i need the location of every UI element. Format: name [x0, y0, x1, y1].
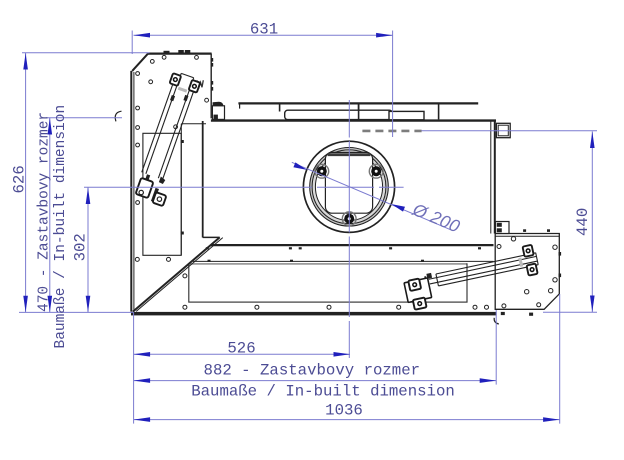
svg-text:Baumaße / In-built dimension: Baumaße / In-built dimension: [53, 105, 69, 349]
svg-text:Baumaße / In-built dimension: Baumaße / In-built dimension: [191, 383, 455, 401]
svg-text:626: 626: [11, 165, 29, 193]
svg-text:302: 302: [72, 233, 90, 261]
svg-text:631: 631: [250, 21, 278, 39]
svg-text:1036: 1036: [325, 402, 363, 420]
svg-text:882 - Zastavbovy rozmer: 882 - Zastavbovy rozmer: [204, 362, 421, 380]
svg-text:470 - Zastavbovy rozmer: 470 - Zastavbovy rozmer: [37, 112, 53, 312]
svg-text:526: 526: [227, 340, 255, 358]
svg-text:440: 440: [574, 208, 592, 236]
